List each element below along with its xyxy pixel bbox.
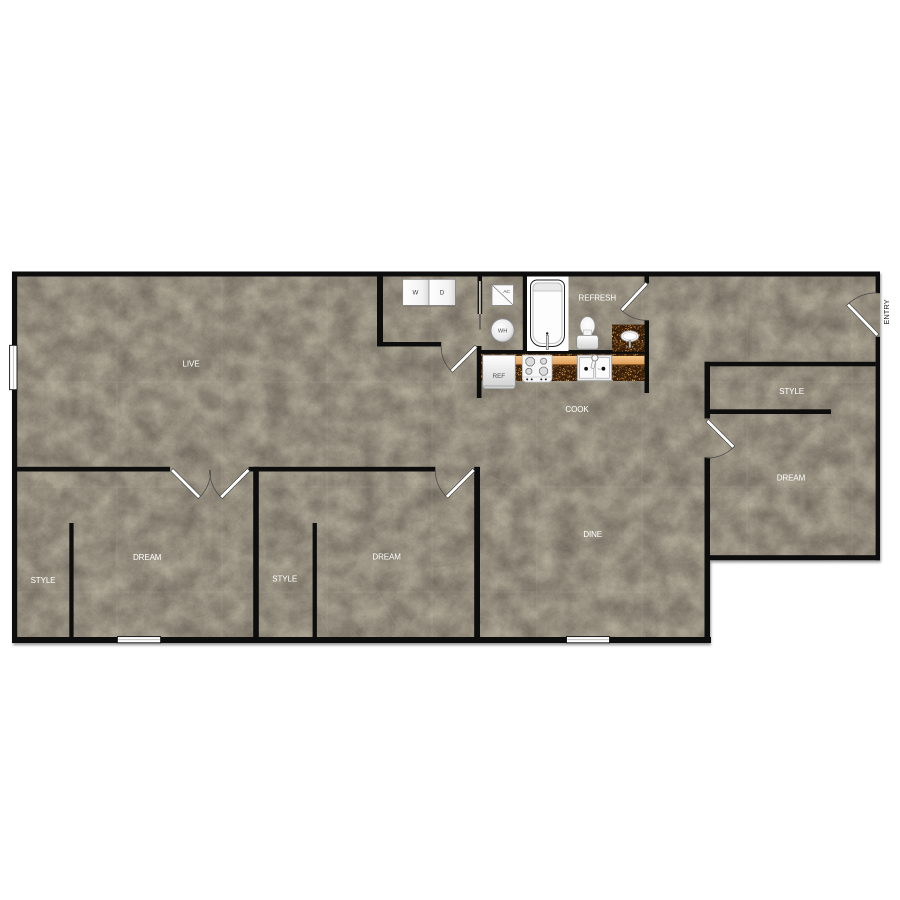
svg-text:D: D (440, 289, 445, 296)
svg-text:COOK: COOK (565, 405, 589, 414)
svg-text:STYLE: STYLE (272, 575, 297, 584)
svg-text:STYLE: STYLE (779, 387, 804, 396)
svg-text:STYLE: STYLE (31, 576, 56, 585)
svg-text:REFRESH: REFRESH (579, 294, 617, 303)
svg-text:AC: AC (503, 289, 510, 295)
svg-text:DREAM: DREAM (372, 552, 401, 561)
svg-text:REF: REF (493, 373, 506, 380)
svg-text:WH: WH (498, 328, 507, 334)
svg-text:LIVE: LIVE (183, 359, 200, 368)
svg-text:ENTRY: ENTRY (882, 299, 891, 324)
svg-text:DREAM: DREAM (133, 553, 162, 562)
svg-text:DREAM: DREAM (777, 474, 806, 483)
svg-text:W: W (412, 289, 418, 296)
svg-text:DINE: DINE (583, 530, 602, 539)
